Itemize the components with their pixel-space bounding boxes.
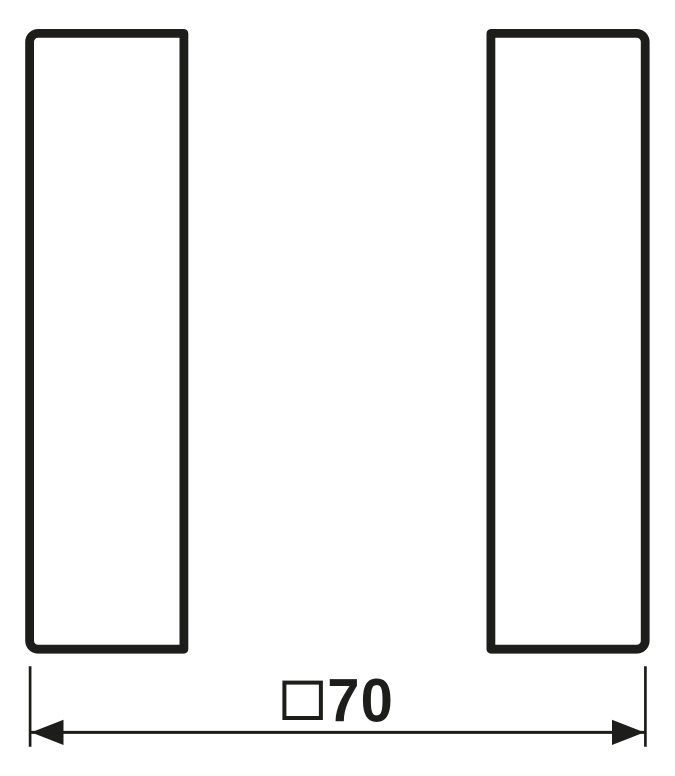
svg-text:70: 70	[327, 666, 394, 735]
